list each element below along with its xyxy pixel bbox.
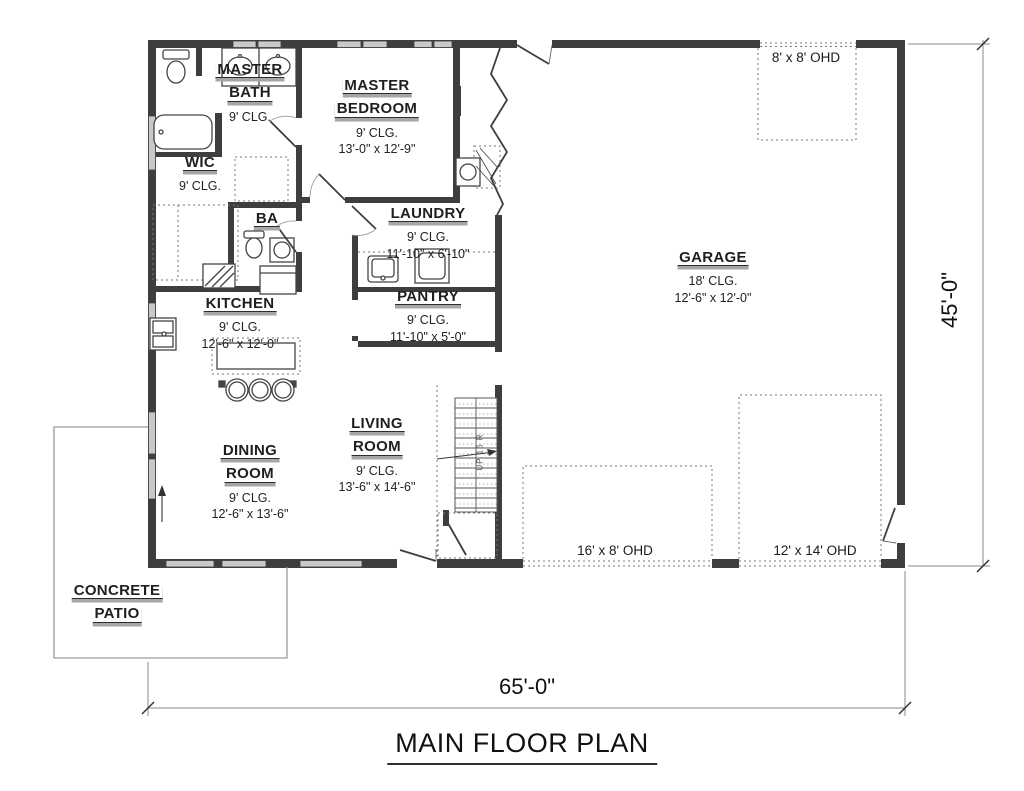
room-label-laundry: LAUNDRY 9' CLG. 11'-10" x 6'-10" xyxy=(387,206,470,262)
room-label-concrete-patio: CONCRETEPATIO xyxy=(72,583,163,630)
room-label-master-bath: MASTERBATH 9' CLG. xyxy=(215,62,284,125)
page-title: MAIN FLOOR PLAN xyxy=(387,728,657,765)
room-label-living-room: LIVINGROOM 9' CLG. 13'-6" x 14'-6" xyxy=(339,416,416,495)
closet-door-leaf xyxy=(445,518,466,555)
ohd-label-8x8: 8' x 8' OHD xyxy=(772,50,840,65)
room-label-ba: BA xyxy=(254,211,280,234)
refrigerator-icon xyxy=(260,266,296,294)
toilet-icon xyxy=(163,50,189,59)
dimension-width: 65'-0" xyxy=(499,674,555,700)
room-label-master-bedroom: MASTERBEDROOM 9' CLG. 13'-0" x 12'-9" xyxy=(335,78,419,157)
ohd-label-16x8: 16' x 8' OHD xyxy=(577,543,653,558)
sink-icon xyxy=(274,242,290,258)
room-label-pantry: PANTRY 9' CLG. 11'-10" x 5'-0" xyxy=(390,289,466,345)
ohd-label-12x14: 12' x 14' OHD xyxy=(773,543,856,558)
room-label-kitchen: KITCHEN 9' CLG. 12'-6" x 12'-0" xyxy=(202,296,279,352)
dimension-lines xyxy=(148,40,990,716)
room-label-wic: WIC 9' CLG. xyxy=(179,155,221,195)
floor-plan-drawing xyxy=(0,0,1024,791)
entry-arrow xyxy=(158,485,166,522)
room-label-dining-room: DININGROOM 9' CLG. 12'-6" x 13'-6" xyxy=(212,443,289,522)
room-label-garage: GARAGE 18' CLG. 12'-6" x 12'-0" xyxy=(675,250,752,306)
stairs xyxy=(437,398,497,555)
dimension-height: 45'-0" xyxy=(937,272,963,328)
dimension-ticks xyxy=(142,38,989,714)
floor-plan-page: MASTERBATH 9' CLG. MASTERBEDROOM 9' CLG.… xyxy=(0,0,1024,791)
stairs-up-label: UP 16 R xyxy=(476,433,485,470)
wall-break-line xyxy=(491,48,507,215)
